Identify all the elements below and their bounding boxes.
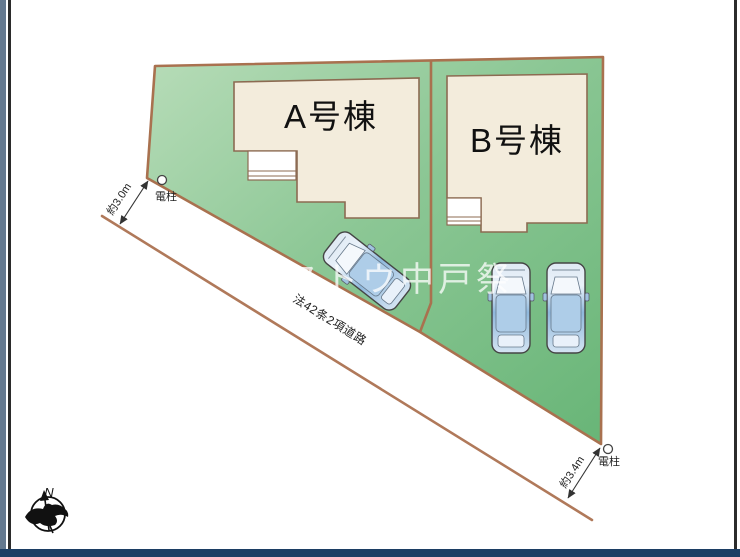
car-roof: [496, 295, 526, 332]
dimension-right-label: 約3.4m: [556, 453, 587, 490]
car-mirror: [543, 293, 547, 301]
frame-left-line: [8, 0, 11, 549]
site-plan-drawing: A号棟 B号棟 法42条2項道路 約3.0m 電柱 約3.4m 電柱: [0, 0, 740, 557]
utility-pole-right: 電柱: [598, 445, 620, 469]
window-edge-strip: [0, 0, 6, 557]
utility-pole-icon: [158, 176, 167, 185]
utility-pole-left-label: 電柱: [155, 189, 177, 203]
bottom-bar: [0, 549, 740, 557]
building-b: B号棟: [447, 74, 587, 232]
dimension-left: 約3.0m: [103, 180, 148, 224]
car-mirror: [585, 293, 589, 301]
watermark-text: ストウ中戸祭: [286, 261, 514, 299]
utility-pole-icon: [604, 445, 613, 454]
car-rear-window: [553, 335, 579, 347]
building-b-label: B号棟: [470, 122, 564, 159]
dimension-left-label: 約3.0m: [103, 180, 134, 217]
dimension-right: 約3.4m: [556, 448, 600, 498]
site-plan-canvas: A号棟 B号棟 法42条2項道路 約3.0m 電柱 約3.4m 電柱: [0, 0, 740, 557]
frame-right-line: [734, 0, 737, 549]
compass-north-label: N: [44, 485, 54, 500]
car-windshield: [551, 277, 581, 294]
car-rear-window: [498, 335, 524, 347]
building-a-label: A号棟: [284, 98, 378, 135]
utility-pole-right-label: 電柱: [598, 454, 620, 468]
car-roof: [551, 295, 581, 332]
car-b2: [543, 263, 589, 353]
compass-icon: N: [25, 485, 68, 533]
car-mirror: [530, 293, 534, 301]
